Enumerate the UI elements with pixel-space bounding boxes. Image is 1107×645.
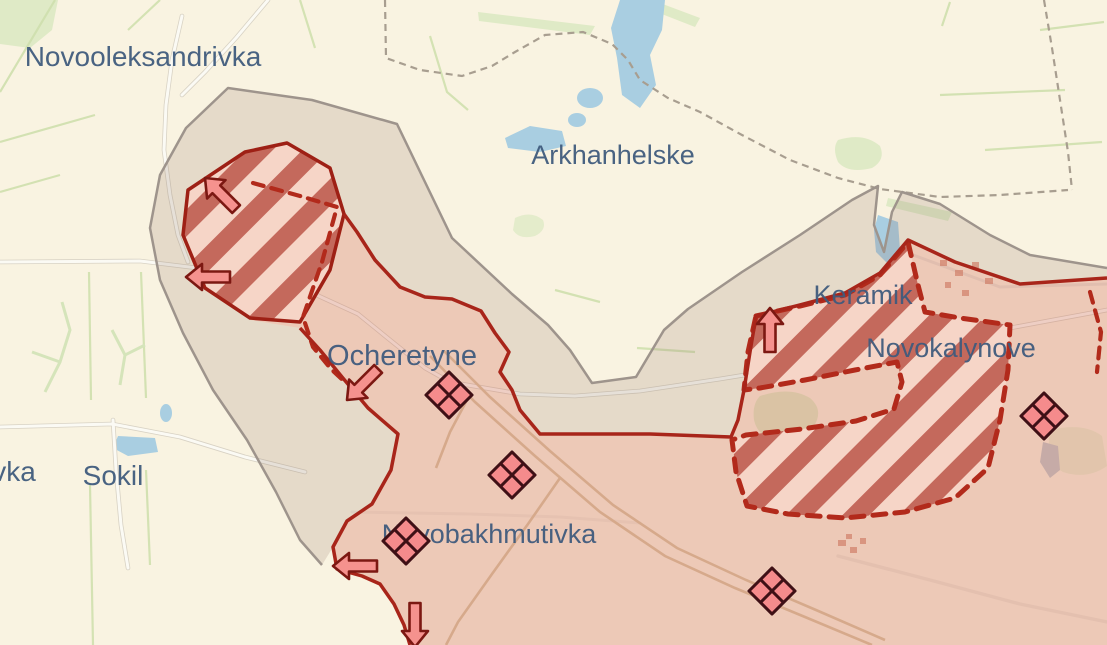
town-label-ocheretyne: Ocheretyne — [327, 340, 477, 372]
town-label-sokil: Sokil — [83, 460, 144, 491]
town-label-novooleksandrivka: Novooleksandrivka — [25, 41, 262, 72]
map-canvas[interactable]: Novooleksandrivka Arkhanhelske Ocheretyn… — [0, 0, 1107, 645]
town-label-partial-west: vka — [0, 456, 36, 487]
town-label-keramik: Keramik — [813, 280, 913, 310]
pond-small-north — [577, 88, 603, 108]
town-label-arkhanhelske: Arkhanhelske — [531, 140, 695, 170]
town-label-novokalynove: Novokalynove — [866, 333, 1036, 363]
